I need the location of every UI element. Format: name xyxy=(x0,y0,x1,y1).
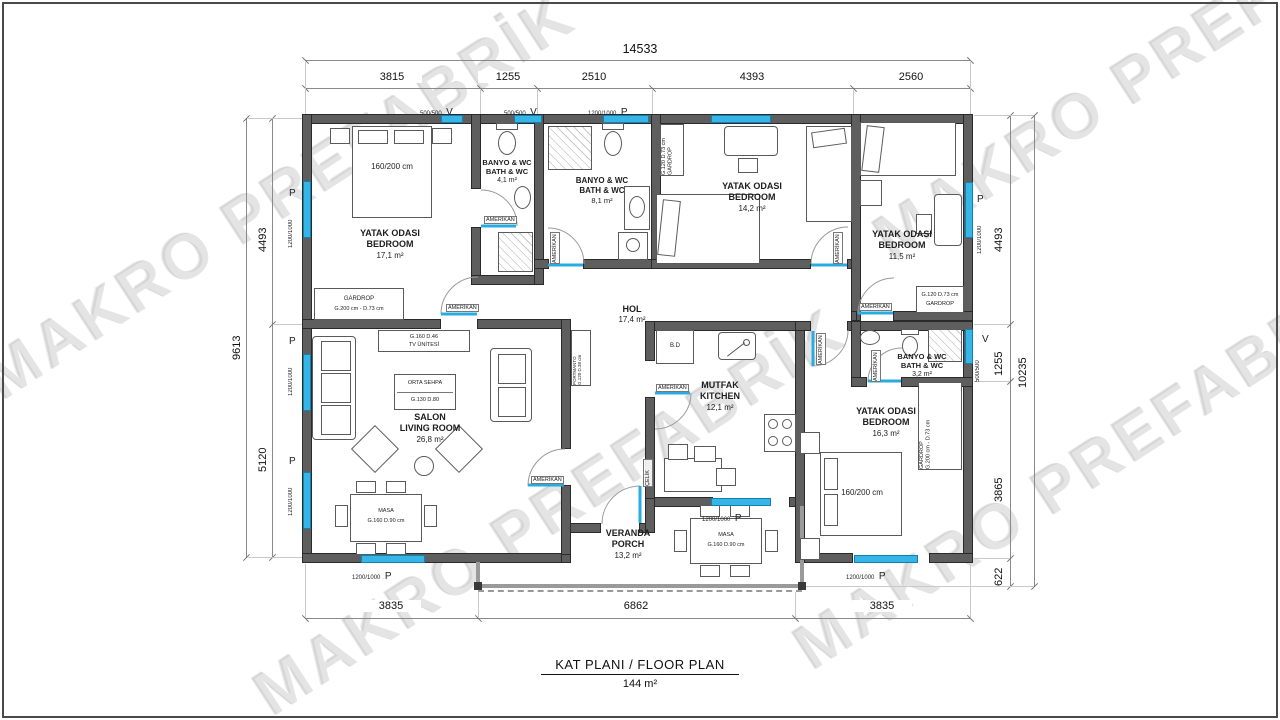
window-type: P xyxy=(385,571,392,582)
room-name-en: BATH & WC xyxy=(566,186,638,196)
window-type: V xyxy=(446,107,453,118)
room-name-tr: YATAK ODASI xyxy=(836,406,936,417)
room-area: 17,4 m² xyxy=(600,315,664,325)
window-size: 1200/1000 xyxy=(702,517,730,523)
room-name-en: BEDROOM xyxy=(836,417,936,428)
floor-plan-canvas: MAKRO PREFABRİK MAKRO PREFABRİK MAKRO PR… xyxy=(0,0,1280,720)
window-type: P xyxy=(289,336,296,347)
room-name-tr: HOL xyxy=(600,304,664,315)
door-label-amerikan: AMERİKAN xyxy=(484,216,517,224)
window-type: P xyxy=(289,456,296,467)
door-swing-layer xyxy=(0,0,1280,720)
room-name-en: BEDROOM xyxy=(852,240,952,251)
door-label-celik: ÇELİK xyxy=(643,459,653,487)
door-label-amerikan: AMERİKAN xyxy=(531,476,564,484)
bed-size-label: 160/200 cm xyxy=(352,162,432,172)
window-label: 1200/1000 P xyxy=(352,566,392,584)
title-block: KAT PLANI / FLOOR PLAN 144 m² xyxy=(440,656,840,690)
room-label-bath3: BANYO & WC BATH & WC 3,2 m² xyxy=(884,352,960,380)
door-label-amerikan: AMERİKAN xyxy=(656,384,689,392)
window-type: V xyxy=(982,334,989,345)
door-label-amerikan: AMERİKAN xyxy=(816,333,826,365)
window-type: P xyxy=(977,194,984,205)
window-size: 500/500 xyxy=(420,111,442,117)
window-size: 1200/1000 xyxy=(288,470,294,516)
room-area: 4,1 m² xyxy=(477,177,537,186)
window-label: 500/500 V xyxy=(420,102,453,120)
room-name-tr: YATAK ODASI xyxy=(340,228,440,239)
door-label-amerikan: AMERİKAN xyxy=(446,304,479,312)
window-type: V xyxy=(530,107,537,118)
room-name-tr: BANYO & WC xyxy=(566,176,638,186)
room-area: 3,2 m² xyxy=(884,371,960,380)
room-name-en: LIVING ROOM xyxy=(380,423,480,434)
room-label-veranda: VERANDA PORCH 13,2 m² xyxy=(592,528,664,561)
plan-total-area: 144 m² xyxy=(440,678,840,690)
room-name-tr: VERANDA xyxy=(592,528,664,539)
room-label-bedroom1: YATAK ODASI BEDROOM 17,1 m² xyxy=(340,228,440,261)
door-label-amerikan: AMERİKAN xyxy=(550,232,560,264)
room-label-bath1: BANYO & WC BATH & WC 4,1 m² xyxy=(477,158,537,186)
room-name-en: KITCHEN xyxy=(672,391,768,402)
door-label-amerikan: AMERİKAN xyxy=(859,303,892,311)
window-type: P xyxy=(879,571,886,582)
room-name-en: PORCH xyxy=(592,539,664,550)
room-area: 12,1 m² xyxy=(672,403,768,413)
plan-title: KAT PLANI / FLOOR PLAN xyxy=(541,657,738,675)
room-name-tr: YATAK ODASI xyxy=(702,181,802,192)
window-label: 1200/1000 P xyxy=(702,508,742,526)
room-area: 16,3 m² xyxy=(836,429,936,439)
window-size: 1200/1000 xyxy=(352,575,380,581)
room-name-tr: SALON xyxy=(380,412,480,423)
room-label-bedroom2: YATAK ODASI BEDROOM 14,2 m² xyxy=(702,181,802,214)
room-label-bedroom4: YATAK ODASI BEDROOM 16,3 m² xyxy=(836,406,936,439)
room-name-en: BEDROOM xyxy=(702,192,802,203)
window-type: P xyxy=(621,107,628,118)
room-area: 8,1 m² xyxy=(566,196,638,205)
window-type: P xyxy=(735,513,742,524)
room-name-en: BEDROOM xyxy=(340,239,440,250)
window-type: P xyxy=(289,188,296,199)
window-size: 500/500 xyxy=(504,111,526,117)
window-size: 1200/1000 xyxy=(288,350,294,396)
room-name-en: BATH & WC xyxy=(477,167,537,176)
window-size: 1200/1000 xyxy=(977,208,983,254)
window-size: 1200/1000 xyxy=(588,111,616,117)
door-label-amerikan: AMERİKAN xyxy=(833,232,843,264)
window-label: 1200/1000 P xyxy=(846,566,886,584)
room-area: 17,1 m² xyxy=(340,251,440,261)
room-label-hol: HOL 17,4 m² xyxy=(600,304,664,325)
room-area: 11,5 m² xyxy=(852,252,952,262)
room-name-tr: BANYO & WC xyxy=(884,352,960,361)
room-name-tr: YATAK ODASI xyxy=(852,229,952,240)
room-label-bedroom3: YATAK ODASI BEDROOM 11,5 m² xyxy=(852,229,952,262)
room-area: 13,2 m² xyxy=(592,551,664,561)
bed-size-label: 160/200 cm xyxy=(826,488,898,498)
room-label-bath2: BANYO & WC BATH & WC 8,1 m² xyxy=(566,176,638,205)
room-name-en: BATH & WC xyxy=(884,361,960,370)
window-size: 1200/1000 xyxy=(846,575,874,581)
room-name-tr: BANYO & WC xyxy=(477,158,537,167)
room-area: 14,2 m² xyxy=(702,204,802,214)
room-label-salon: SALON LIVING ROOM 26,8 m² xyxy=(380,412,480,445)
room-area: 26,8 m² xyxy=(380,435,480,445)
window-label: 500/500 V xyxy=(504,102,537,120)
window-size: 500/500 xyxy=(975,346,981,382)
window-size: 1200/1000 xyxy=(288,202,294,248)
door-label-amerikan: AMERİKAN xyxy=(871,350,881,382)
window-label: 1200/1000 P xyxy=(588,102,628,120)
